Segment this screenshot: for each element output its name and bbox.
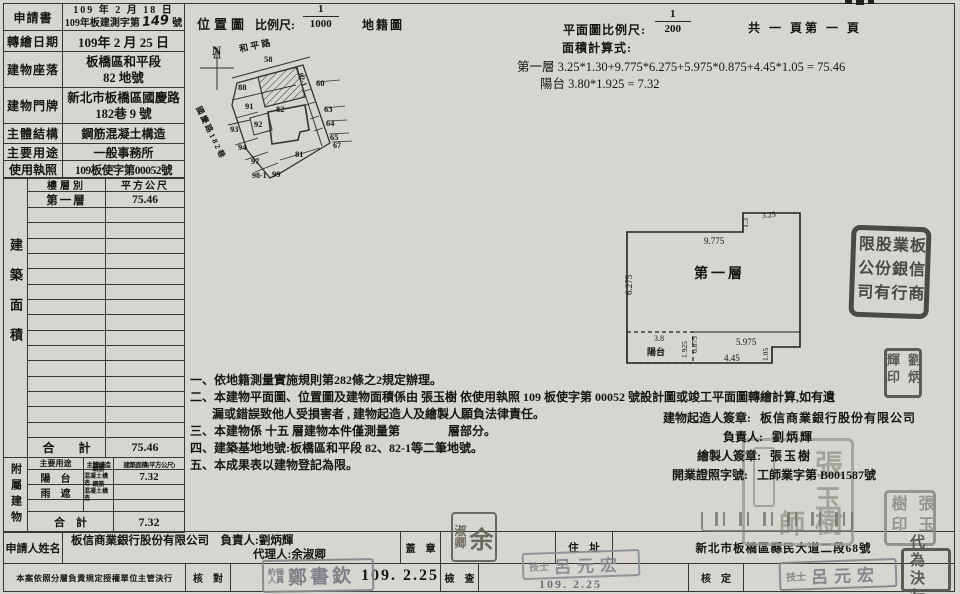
lot-98-1: 98-1 [252, 171, 267, 180]
dim-balcony-width: 3.8 [654, 334, 664, 343]
survey-document-page: 申請書 109 年 2 月 18 日 109年板建測字第 149 號 轉繪日期 … [0, 0, 960, 594]
applicant-company: 板信商業銀行股份有限公司 負責人:劉炳輝 [71, 534, 293, 548]
col-floor-header: 樓層別 [28, 178, 106, 191]
note-2: 二、本建物平面圖、位置圖及建物面積係由 張玉樹 依使用執照 109 板使字第 0… [190, 389, 950, 406]
dim-notch-height: 1.3 [741, 218, 750, 228]
clerk-stamp: 約僱 人員 鄭書欽 [262, 558, 375, 593]
building-lane: 182巷 9 號 [95, 106, 151, 122]
dim-top-width: 9.775 [704, 236, 725, 246]
structure-value: 鋼筋混凝土構造 [63, 124, 184, 143]
floor-plan: 3.25 1.3 9.775 6.275 第一層 3.8 陽台 1.925 0.… [612, 203, 812, 373]
lot-82: 82 [276, 104, 285, 114]
building-area-table: 建築面積 樓層別 平方公尺 第一層 75.46 [3, 177, 185, 458]
blank-row [28, 423, 184, 438]
plan-scale-label: 平面圖比例尺: [563, 21, 646, 38]
tech-name: 呂元宏 [554, 551, 624, 578]
blank-row [28, 377, 184, 392]
partial-stamp [701, 512, 853, 532]
blank-row [28, 300, 184, 315]
blank-row [28, 269, 184, 284]
annex-row-balcony: 陽 台 [28, 470, 84, 484]
plan-scale-fraction: 1 200 [655, 8, 691, 36]
blank-row [28, 254, 184, 269]
form-label: 主要用途 [4, 144, 63, 160]
form-label: 建物座落 [4, 52, 63, 87]
blank-row [28, 407, 184, 422]
lot-92: 92 [254, 119, 263, 129]
drafter-line: 繪製人簽章: 張玉樹 [697, 447, 812, 464]
dim-balcony-height: 1.925 [680, 341, 689, 358]
lot-94: 94 [238, 142, 247, 152]
drafter-name: 張玉樹 [770, 449, 812, 463]
annex-building-table: 附屬建物 主要用途 主體構造 建築面積(平方公尺) 陽 台 鋼筋 混凝土構造 7… [3, 457, 185, 533]
land-section: 板橋區和平段 [86, 54, 161, 70]
blank-row [28, 315, 184, 330]
lot-99: 99 [272, 169, 281, 179]
application-form: 申請書 109 年 2 月 18 日 109年板建測字第 149 號 轉繪日期 … [3, 3, 185, 179]
tech-title: 技士 [529, 558, 550, 574]
blank-row [28, 285, 184, 300]
area-total-value: 75.46 [106, 438, 184, 457]
location-map: N 和 平 路 國慶路1 [192, 30, 362, 190]
lot-64: 64 [326, 118, 335, 128]
inspect-date: 109. 2.25 [539, 577, 602, 592]
blank-row [28, 239, 184, 254]
lot-60: 60 [316, 78, 325, 88]
dim-bottom-width: 4.45 [724, 353, 740, 363]
floor-1-area: 75.46 [106, 192, 184, 207]
license-number: 工師業字第 B001587號 [757, 468, 876, 482]
form-row-structure: 主體結構 鋼筋混凝土構造 [4, 124, 184, 144]
dim-mid-width: 5.975 [736, 337, 757, 347]
seal-column-label: 蓋 章 [401, 532, 441, 563]
annex-canopy-structure: 鋼筋 混凝土構造 [84, 485, 114, 499]
blank-row [28, 208, 184, 223]
license-line: 開業證照字號: 工師業字第 B001587號 [672, 466, 876, 483]
lot-97: 97 [251, 156, 260, 166]
blank-row [28, 346, 184, 361]
annex-row-canopy: 雨 遮 [28, 485, 84, 499]
lot-88: 88 [238, 82, 247, 92]
annex-canopy-area [114, 485, 184, 499]
building-footprint [268, 105, 309, 144]
cropped-marks [845, 0, 875, 5]
applicant-label: 申請人姓名 [4, 532, 63, 563]
annex-col-use: 主要用途 [28, 458, 84, 469]
inspect-label: 檢 查 [441, 564, 479, 591]
cadastral-map-label: 地籍圖 [362, 16, 404, 33]
check-label: 核 對 [186, 564, 231, 591]
form-label: 建物門牌 [4, 88, 63, 123]
deputy-decision-stamp: 代為 決行 [901, 548, 951, 592]
owner-seal: 劉炳 輝印 [884, 348, 922, 398]
col-area-header: 平方公尺 [106, 178, 184, 191]
balcony-label: 陽台 [647, 346, 665, 357]
application-number: 109年板建測字第 149 號 [65, 17, 182, 30]
lot-93: 93 [230, 124, 239, 134]
technician-stamp-2: 技士 呂元宏 [779, 558, 898, 591]
page-count: 共 一 頁第 一 頁 [748, 19, 862, 36]
owner-name: 劉炳輝 [772, 430, 814, 444]
blank-row [28, 331, 184, 346]
form-row-address: 建物門牌 新北市板橋區國慶路 182巷 9 號 [4, 88, 184, 124]
approve-label: 核 定 [689, 564, 744, 591]
redraw-date: 109年 2 月 25 日 [63, 31, 184, 51]
blank-row [28, 361, 184, 376]
note-1: 一、依地籍測量實施規則第282條之2規定辦理。 [190, 372, 950, 389]
builder-signature-line: 建物起造人簽章: 板信商業銀行股份有限公司 [663, 409, 916, 426]
area-calc-line2: 陽台 3.80*1.925 = 7.32 [540, 73, 660, 92]
form-row-redraw-date: 轉繪日期 109年 2 月 25 日 [4, 31, 184, 52]
road-guoqing-label: 國慶路182巷 [194, 104, 228, 161]
area-total-label: 合 計 [28, 438, 106, 457]
form-label: 申請書 [4, 4, 63, 30]
handwritten-number: 149 [142, 14, 170, 28]
annex-balcony-area: 7.32 [114, 470, 184, 484]
building-street: 新北市板橋區國慶路 [67, 90, 180, 106]
tech-title: 技士 [786, 568, 807, 584]
area-table-side-label: 建築面積 [6, 238, 25, 358]
area-calc-title: 面積計算式: [562, 39, 632, 56]
land-number: 82 地號 [103, 70, 144, 86]
form-row-license: 使用執照 109板使字第00052號 [4, 161, 184, 178]
annex-side-label: 附屬建物 [8, 463, 24, 527]
applicant-rep: 負責人:劉炳輝 [221, 535, 294, 547]
dim-step-height: 0.875 [690, 336, 699, 353]
clerk-name: 鄭書欽 [288, 561, 355, 590]
agent-seal: 余 淑 卿 [451, 512, 497, 562]
dim-left-height: 6.275 [624, 274, 634, 295]
license-value: 109板使字第00052號 [63, 161, 184, 178]
annex-total-value: 7.32 [114, 512, 184, 532]
lot-58: 58 [264, 54, 273, 64]
road-heping-label: 和 平 路 [237, 36, 272, 54]
form-label: 主體結構 [4, 124, 63, 143]
use-value: 一般事務所 [63, 144, 184, 160]
form-label: 使用執照 [4, 161, 63, 178]
blank-row [28, 223, 184, 238]
location-map-title: 位置圖 [197, 14, 248, 33]
blank-row [28, 392, 184, 407]
delegation-policy: 本案依照分層負責規定授權單位主管決行 [4, 564, 186, 591]
form-row-use: 主要用途 一般事務所 [4, 144, 184, 161]
lot-67: 67 [333, 141, 341, 150]
location-scale-label: 比例尺: [255, 16, 295, 33]
form-row-application: 申請書 109 年 2 月 18 日 109年板建測字第 149 號 [4, 4, 184, 31]
annex-total-label: 合 計 [28, 512, 114, 532]
lot-91: 91 [245, 101, 254, 111]
tech-name: 呂元宏 [811, 561, 881, 588]
agent-seal-small-col: 淑 卿 [454, 525, 466, 549]
dim-right-step: 1.05 [761, 348, 770, 361]
clerk-title: 約僱 人員 [268, 568, 284, 584]
floor-plan-label: 第一層 [694, 265, 745, 282]
company-seal: 板信商業銀行股份有限公司 [848, 225, 931, 320]
builder-name: 板信商業銀行股份有限公司 [760, 411, 916, 425]
annex-col-area: 建築面積(平方公尺) [114, 458, 184, 469]
owner-line: 負責人: 劉炳輝 [723, 428, 814, 445]
location-scale-fraction: 1 1000 [303, 3, 339, 31]
blank-row [28, 500, 184, 512]
floor-1-label: 第一層 [28, 192, 106, 207]
technician-stamp-1: 技士 呂元宏 [522, 549, 641, 580]
dim-notch-width: 3.25 [761, 210, 776, 220]
lot-63: 63 [324, 104, 333, 114]
form-row-location: 建物座落 板橋區和平段 82 地號 [4, 52, 184, 88]
lot-81: 81 [295, 149, 304, 159]
form-label: 轉繪日期 [4, 31, 63, 51]
